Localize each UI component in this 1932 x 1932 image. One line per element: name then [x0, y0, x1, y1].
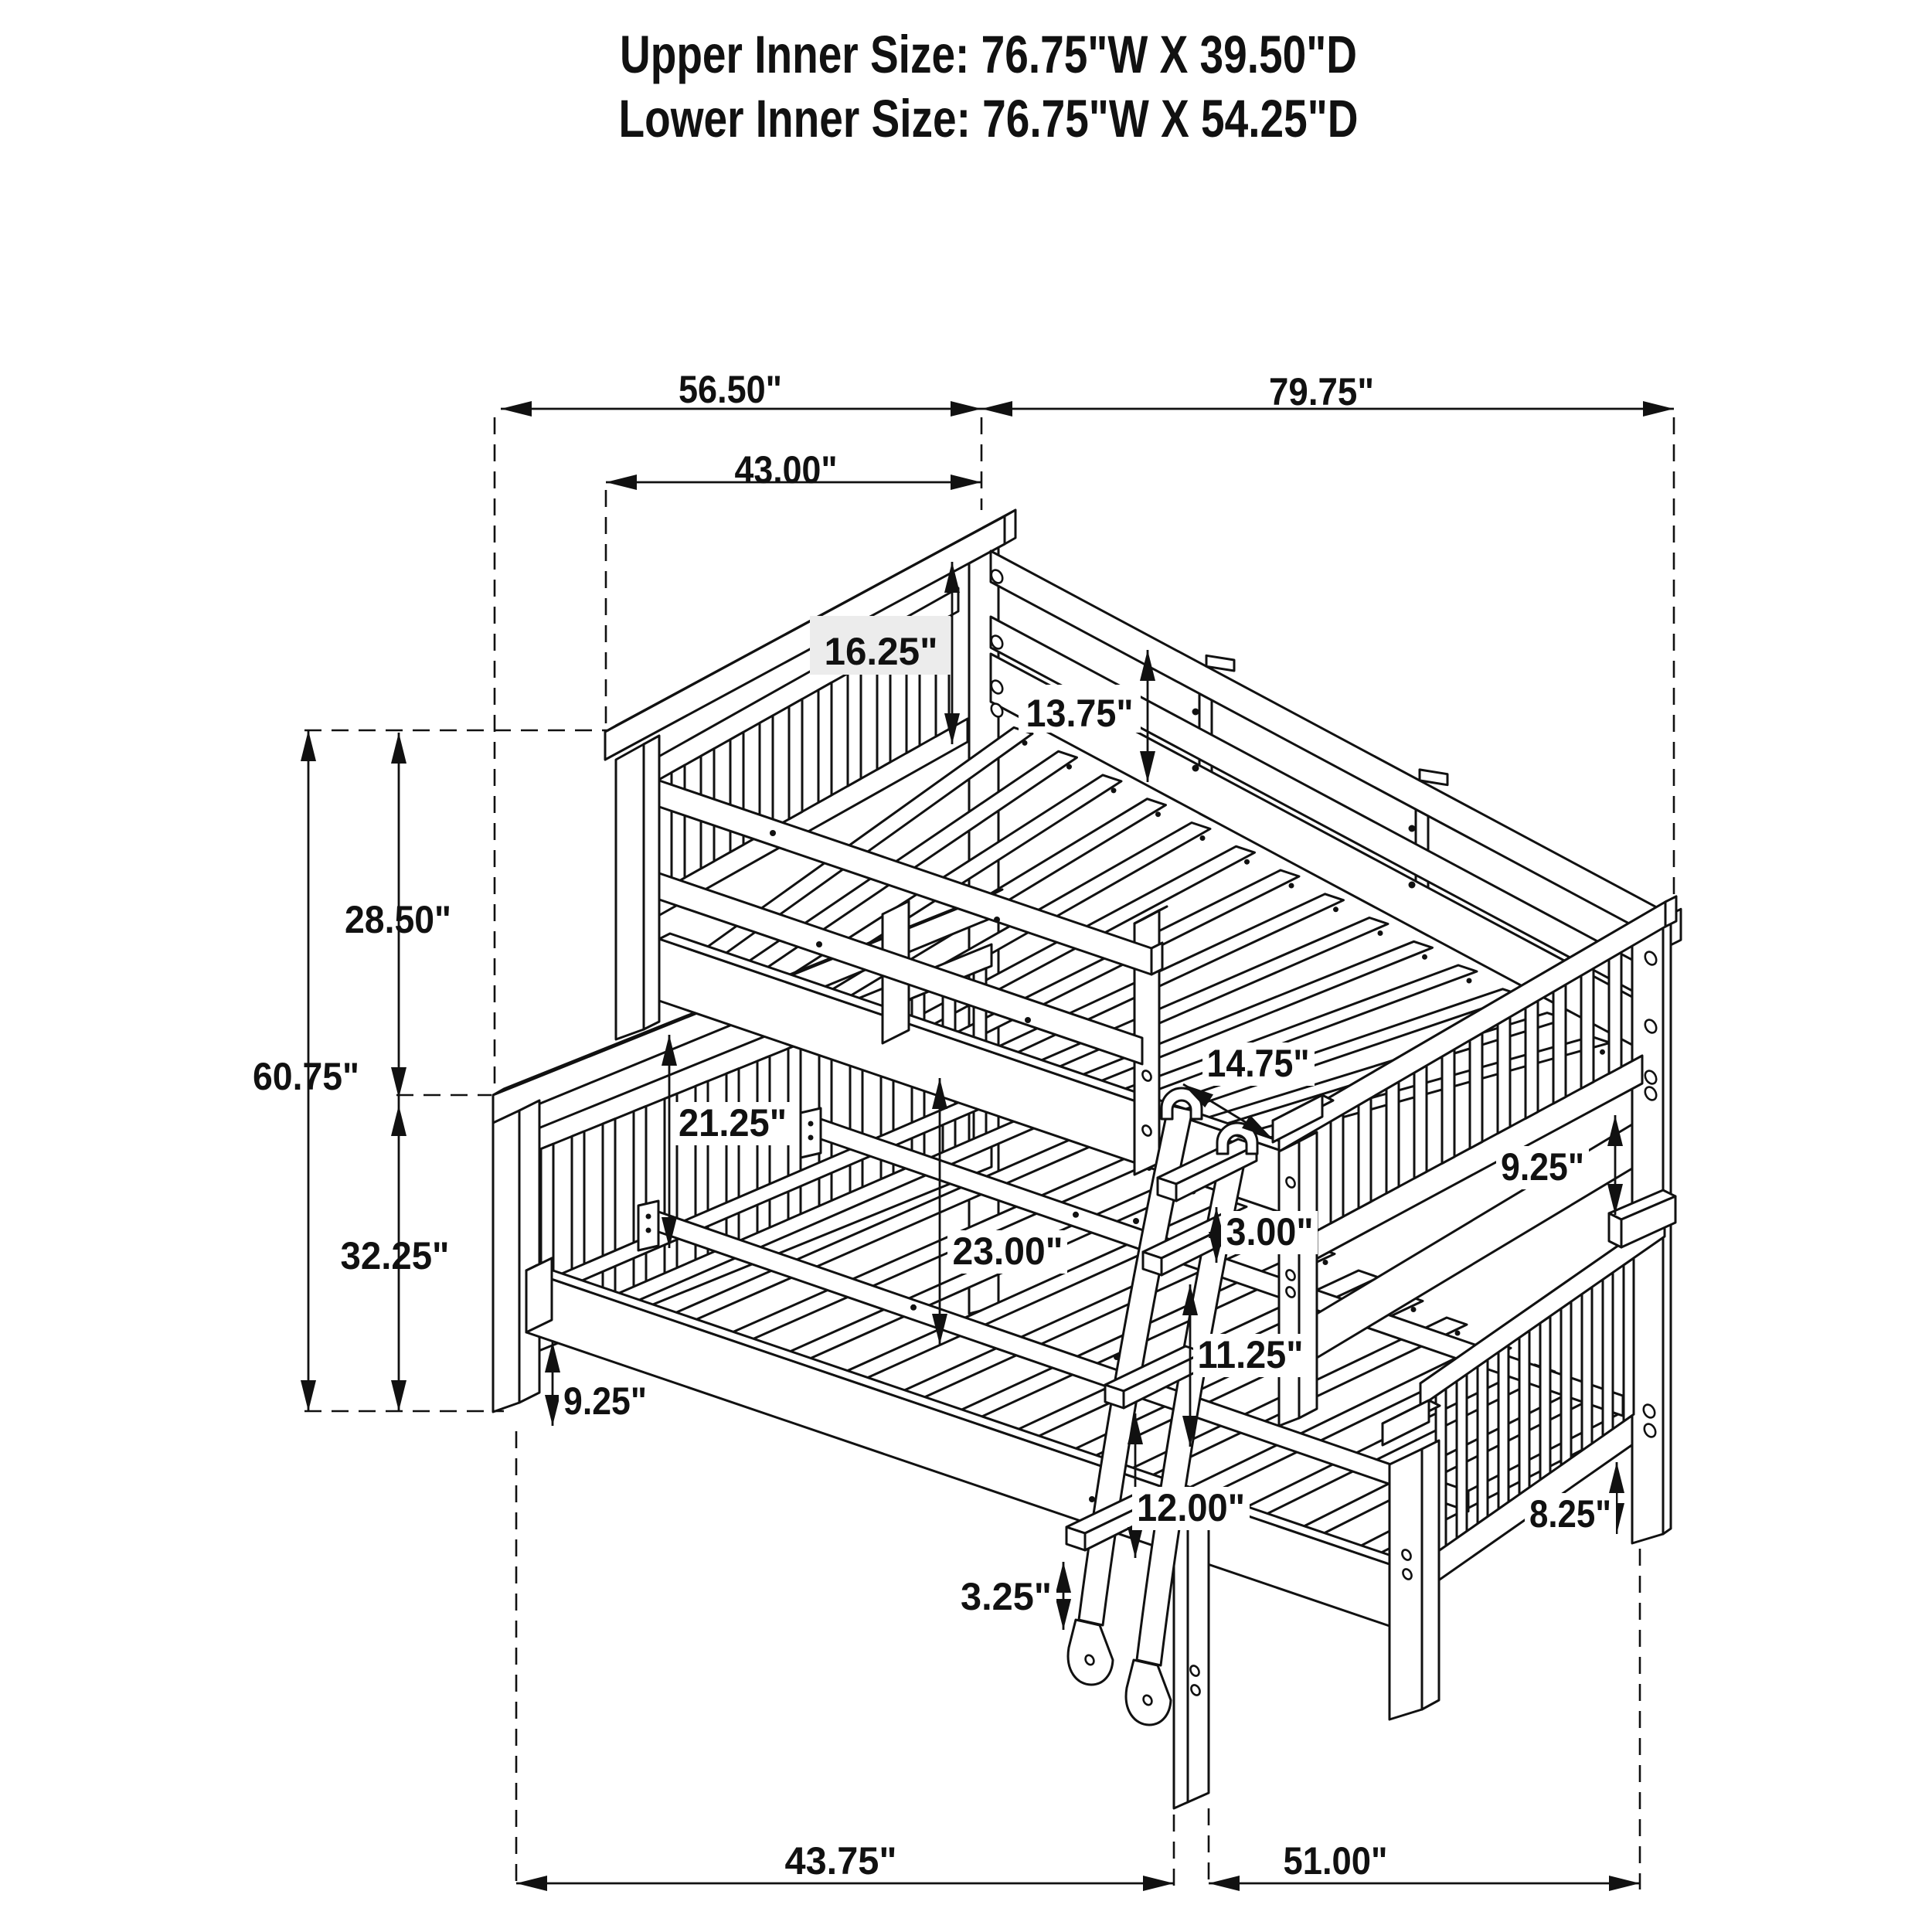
- svg-text:28.50": 28.50": [345, 898, 451, 941]
- svg-text:51.00": 51.00": [1284, 1839, 1388, 1883]
- svg-text:21.25": 21.25": [679, 1101, 787, 1145]
- svg-text:60.75": 60.75": [253, 1055, 359, 1098]
- svg-text:9.25": 9.25": [563, 1379, 647, 1423]
- svg-text:3.25": 3.25": [961, 1575, 1052, 1618]
- svg-text:Upper Inner Size: 76.75"W X 39: Upper Inner Size: 76.75"W X 39.50"D: [620, 25, 1357, 84]
- svg-text:Lower Inner Size: 76.75"W X 54: Lower Inner Size: 76.75"W X 54.25"D: [619, 89, 1359, 148]
- svg-text:43.75": 43.75": [785, 1839, 897, 1883]
- svg-text:16.25": 16.25": [825, 630, 938, 673]
- svg-text:23.00": 23.00": [953, 1230, 1063, 1273]
- svg-text:12.00": 12.00": [1137, 1486, 1245, 1529]
- svg-text:11.25": 11.25": [1198, 1333, 1304, 1376]
- svg-text:14.75": 14.75": [1207, 1042, 1310, 1085]
- svg-text:43.00": 43.00": [735, 448, 838, 492]
- svg-text:9.25": 9.25": [1501, 1145, 1584, 1189]
- svg-text:3.00": 3.00": [1226, 1210, 1314, 1253]
- svg-text:56.50": 56.50": [679, 368, 782, 411]
- svg-text:8.25": 8.25": [1529, 1492, 1611, 1536]
- svg-text:13.75": 13.75": [1026, 692, 1134, 735]
- svg-text:79.75": 79.75": [1269, 370, 1374, 413]
- svg-text:32.25": 32.25": [341, 1234, 450, 1277]
